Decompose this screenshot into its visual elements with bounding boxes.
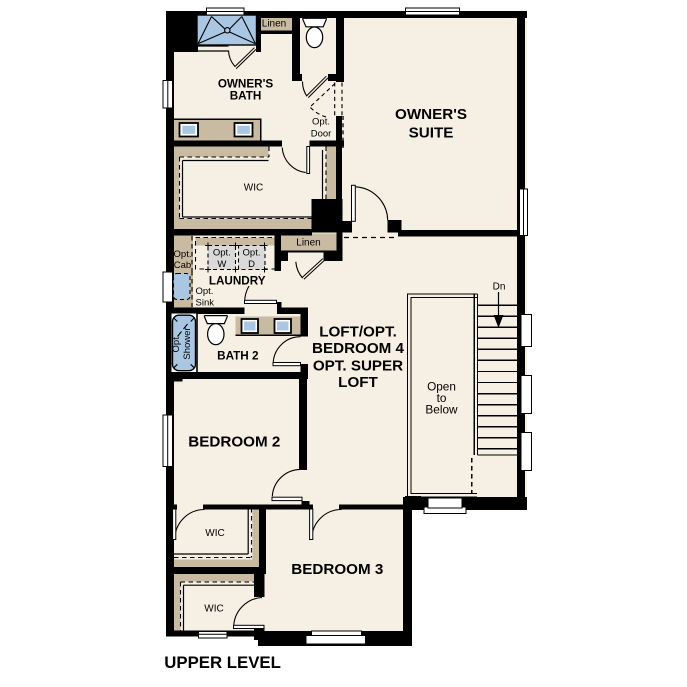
svg-text:Opt.: Opt. [243, 248, 261, 259]
svg-text:BATH 2: BATH 2 [217, 350, 259, 363]
svg-text:SUITE: SUITE [409, 124, 454, 141]
svg-text:Opt.: Opt. [213, 248, 231, 259]
svg-text:BATH: BATH [230, 90, 262, 103]
svg-text:Opt.: Opt. [312, 117, 330, 128]
svg-text:Cab: Cab [174, 260, 191, 271]
svg-text:BEDROOM 2: BEDROOM 2 [188, 434, 280, 451]
svg-text:Linen: Linen [296, 238, 320, 249]
svg-text:Opt.: Opt. [196, 286, 214, 297]
svg-text:Sink: Sink [196, 298, 215, 309]
svg-text:Dn: Dn [493, 282, 506, 293]
svg-text:LOFT/OPT.: LOFT/OPT. [319, 323, 397, 340]
svg-text:Below: Below [425, 403, 458, 417]
svg-text:BEDROOM 3: BEDROOM 3 [291, 561, 383, 578]
svg-text:D: D [248, 259, 255, 270]
svg-text:Shower: Shower [182, 327, 193, 359]
svg-text:OWNER'S: OWNER'S [395, 106, 467, 123]
svg-text:WIC: WIC [244, 183, 263, 194]
svg-text:UPPER LEVEL: UPPER LEVEL [164, 653, 281, 672]
svg-text:LAUNDRY: LAUNDRY [209, 275, 266, 288]
svg-text:WIC: WIC [205, 528, 224, 539]
svg-text:W: W [217, 259, 226, 270]
svg-text:WIC: WIC [204, 604, 223, 615]
svg-text:BEDROOM 4: BEDROOM 4 [312, 340, 405, 357]
svg-text:Door: Door [311, 129, 332, 140]
svg-text:Opt.: Opt. [174, 249, 192, 260]
svg-text:OPT. SUPER: OPT. SUPER [313, 358, 403, 375]
svg-text:Linen: Linen [262, 19, 286, 30]
svg-text:LOFT: LOFT [338, 374, 378, 391]
svg-text:Opt.: Opt. [171, 335, 182, 353]
